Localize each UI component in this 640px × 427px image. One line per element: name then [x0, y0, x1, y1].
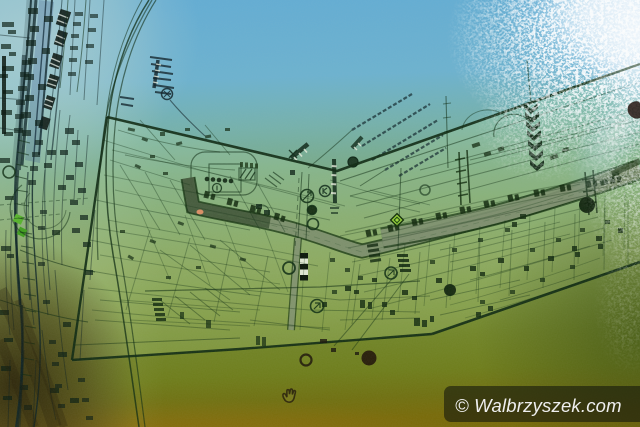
svg-text:© Walbrzyszek.com: © Walbrzyszek.com — [455, 395, 622, 416]
